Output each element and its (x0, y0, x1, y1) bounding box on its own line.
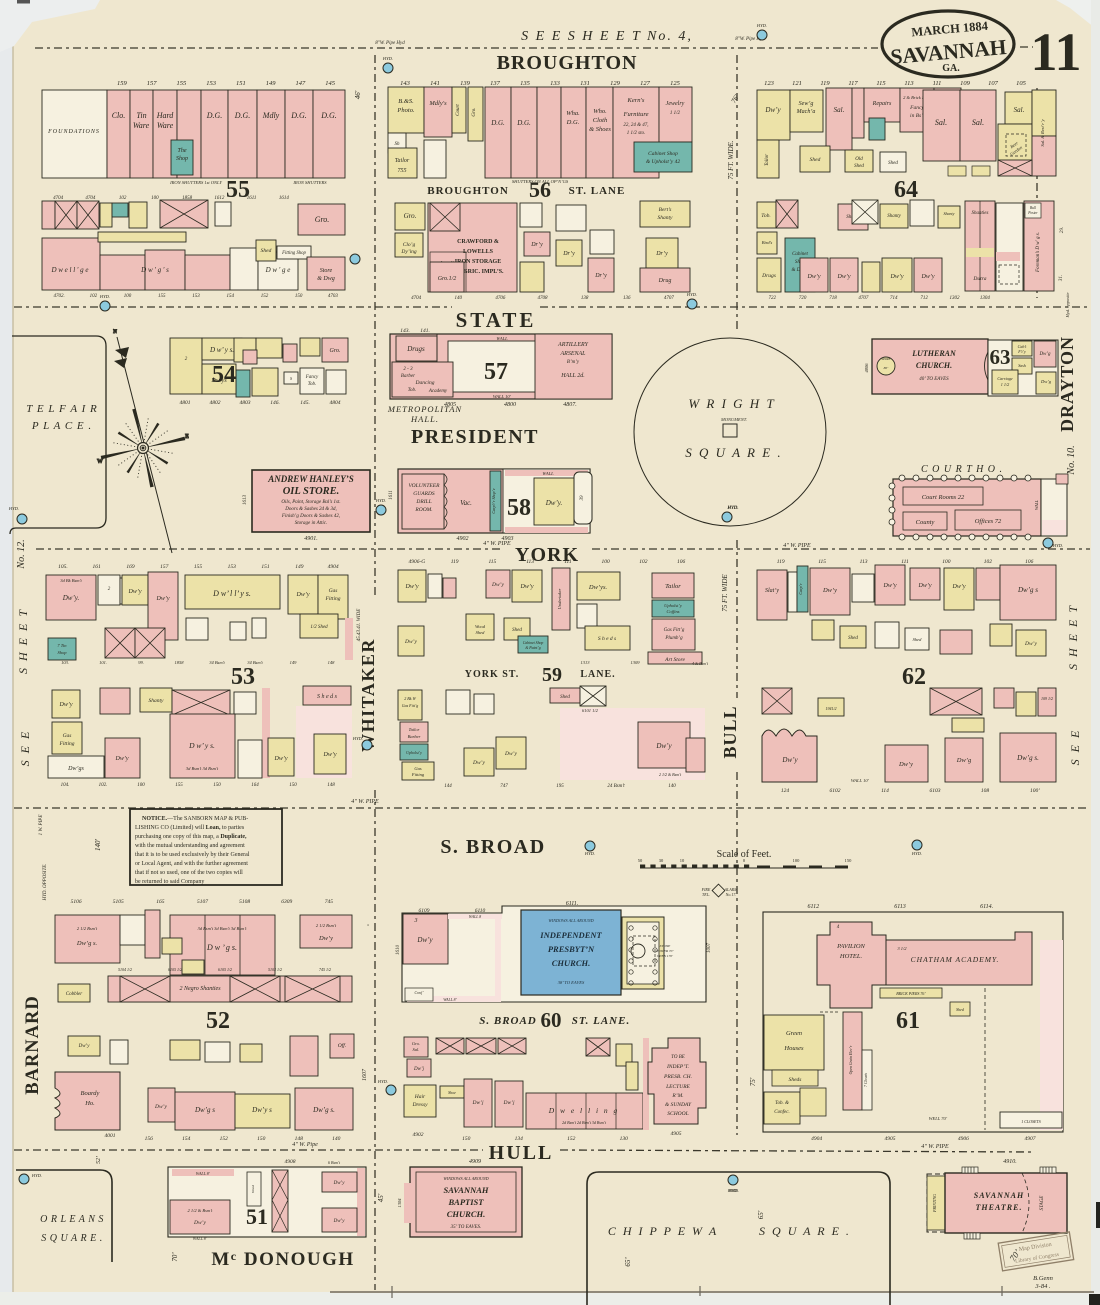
svg-text:WINDOWS ALL AROUND: WINDOWS ALL AROUND (548, 918, 593, 923)
svg-text:Dw’y: Dw’y (1024, 641, 1037, 647)
svg-text:6112: 6112 (808, 904, 820, 910)
svg-text:D w’ y s.: D w’ y s. (209, 346, 234, 354)
svg-text:119: 119 (777, 559, 785, 565)
svg-text:Wood: Wood (251, 1185, 255, 1193)
svg-text:745: 745 (325, 898, 334, 905)
svg-text:S h e d s: S h e d s (598, 636, 616, 642)
svg-text:117: 117 (848, 80, 858, 87)
svg-text:4908: 4908 (285, 1158, 296, 1165)
svg-text:IRON SHUTTERS 1st ONLY: IRON SHUTTERS 1st ONLY (169, 180, 222, 185)
svg-text:Hyd. opposite: Hyd. opposite (1065, 293, 1070, 319)
svg-text:6105 1/2: 6105 1/2 (218, 967, 232, 972)
svg-text:BROUGHTON: BROUGHTON (497, 52, 638, 74)
svg-text:Tailor: Tailor (665, 583, 681, 590)
svg-text:OPEN 170’: OPEN 170’ (657, 954, 674, 958)
svg-text:HYD.: HYD. (727, 1188, 738, 1193)
svg-text:35’ TO EAVES.: 35’ TO EAVES. (451, 1225, 482, 1230)
svg-text:Tob.: Tob. (761, 213, 770, 219)
svg-text:Upholst’y: Upholst’y (406, 750, 422, 755)
svg-text:W: W (97, 459, 103, 465)
svg-text:BARNARD: BARNARD (23, 995, 43, 1095)
svg-text:STAGE: STAGE (1040, 1196, 1045, 1211)
svg-text:6105 1/2: 6105 1/2 (168, 967, 182, 972)
svg-text:Sal.: Sal. (935, 118, 947, 127)
svg-text:164: 164 (251, 783, 259, 788)
svg-text:R’M.: R’M. (671, 1093, 683, 1099)
svg-text:Dw’y: Dw’y (193, 1220, 206, 1226)
svg-text:& Shoes: & Shoes (589, 126, 611, 133)
svg-text:102.: 102. (99, 783, 108, 788)
svg-text:1 CLOSETS: 1 CLOSETS (1021, 1119, 1040, 1124)
svg-text:WELL 70’: WELL 70’ (929, 1116, 948, 1121)
svg-text:Old: Old (855, 157, 863, 162)
svg-text:64: 64 (894, 177, 918, 203)
svg-text:4902: 4902 (413, 1131, 424, 1138)
svg-text:2 - 3: 2 - 3 (403, 367, 413, 372)
svg-text:ST. LANE: ST. LANE (569, 185, 626, 197)
svg-text:Ho.: Ho. (84, 1100, 95, 1107)
svg-text:STATE: STATE (456, 308, 537, 332)
svg-text:2 1/2 & Bsm’t: 2 1/2 & Bsm’t (659, 772, 682, 777)
svg-text:THEATRE.: THEATRE. (976, 1203, 1023, 1212)
svg-text:B.Genn: B.Genn (1033, 1275, 1053, 1282)
svg-text:161: 161 (93, 564, 102, 570)
svg-text:Shed: Shed (476, 630, 485, 635)
svg-text:45': 45' (377, 1193, 385, 1202)
svg-text:57: 57 (484, 359, 508, 385)
svg-text:105: 105 (1016, 80, 1027, 87)
svg-text:GA.: GA. (942, 63, 960, 74)
svg-text:SAVANNAH: SAVANNAH (974, 1191, 1024, 1200)
svg-text:1941/2: 1941/2 (825, 706, 836, 711)
svg-text:Gas: Gas (63, 733, 72, 739)
svg-text:119: 119 (820, 80, 830, 87)
svg-text:58: 58 (507, 495, 531, 521)
svg-text:4704: 4704 (53, 196, 64, 201)
svg-text:Dw’y: Dw’y (156, 596, 170, 602)
svg-text:109: 109 (960, 80, 971, 87)
svg-text:1610: 1610 (396, 945, 401, 956)
svg-text:51: 51 (246, 1204, 268, 1229)
svg-text:147: 147 (296, 80, 307, 87)
svg-text:56: 56 (529, 177, 551, 202)
svg-text:4001: 4001 (105, 1132, 116, 1139)
svg-text:153: 153 (192, 294, 200, 299)
svg-text:Court: Court (456, 104, 461, 116)
svg-text:52: 52 (206, 1008, 230, 1034)
svg-text:D w ' g e: D w ' g e (265, 266, 291, 274)
svg-text:Shop: Shop (58, 650, 68, 655)
svg-text:Fancy: Fancy (909, 105, 924, 111)
svg-text:121: 121 (792, 80, 802, 87)
svg-text:Mdly: Mdly (262, 111, 280, 120)
svg-text:722: 722 (768, 296, 776, 301)
svg-text:4807.: 4807. (563, 401, 577, 408)
svg-text:106: 106 (677, 559, 686, 565)
svg-text:7 Closets: 7 Closets (864, 1072, 868, 1087)
svg-text:Art Store: Art Store (664, 657, 685, 663)
svg-text:Confec.: Confec. (774, 1110, 789, 1115)
svg-text:Drugs: Drugs (406, 345, 425, 353)
svg-text:P L A C E .: P L A C E . (31, 420, 92, 432)
svg-text:D.G.: D.G. (490, 119, 505, 127)
svg-text:Conf’: Conf’ (415, 991, 425, 995)
svg-text:Dw’y: Dw’y (333, 1181, 346, 1186)
svg-text:S h e d s: S h e d s (317, 694, 338, 700)
svg-text:Drugs: Drugs (761, 273, 776, 279)
svg-text:Cabinet Shop: Cabinet Shop (523, 641, 544, 645)
svg-text:Dw’y: Dw’y (333, 1219, 346, 1224)
svg-text:Houses: Houses (783, 1045, 804, 1052)
svg-text:HYD.: HYD. (31, 1173, 42, 1178)
svg-text:4905: 4905 (885, 1135, 896, 1142)
svg-text:100: 100 (793, 858, 801, 863)
svg-text:Dw’y: Dw’y (323, 752, 337, 758)
svg-text:124: 124 (781, 787, 790, 794)
svg-text:Dw’y: Dw’y (655, 742, 672, 750)
svg-text:6101 1/2: 6101 1/2 (582, 708, 599, 713)
svg-text:Dw’y: Dw’y (274, 756, 288, 762)
svg-text:GUARDS: GUARDS (413, 491, 435, 497)
svg-text:119: 119 (451, 559, 459, 565)
svg-text:Off.: Off. (338, 1042, 347, 1049)
svg-text:C H I P P E W A: C H I P P E W A (608, 1224, 718, 1238)
svg-text:Dw’g s.: Dw’g s. (312, 1106, 335, 1114)
svg-text:129: 129 (610, 80, 621, 87)
svg-text:140: 140 (332, 1135, 341, 1142)
svg-text:ARSENAL: ARSENAL (560, 351, 587, 357)
svg-text:Barber: Barber (401, 374, 415, 379)
svg-text:Tob.: Tob. (308, 382, 317, 387)
svg-text:145: 145 (325, 80, 336, 87)
svg-text:54: 54 (212, 362, 236, 388)
svg-text:Clo’g: Clo’g (403, 242, 416, 248)
svg-text:149: 149 (266, 80, 277, 87)
svg-text:Sheds: Sheds (789, 1077, 802, 1083)
svg-text:150: 150 (213, 783, 221, 788)
svg-text:Wood: Wood (475, 624, 486, 629)
svg-text:Dw’y: Dw’y (318, 935, 333, 942)
svg-text:101.: 101. (99, 660, 107, 665)
svg-text:4910.: 4910. (1003, 1158, 1017, 1165)
svg-text:169: 169 (126, 564, 135, 570)
svg-text:Sew’g: Sew’g (799, 101, 814, 107)
svg-text:Jewelry: Jewelry (666, 101, 685, 107)
svg-text:Mach’a: Mach’a (796, 109, 816, 115)
svg-text:No.17.: No.17. (725, 892, 737, 897)
svg-text:Court Rooms 22: Court Rooms 22 (922, 494, 965, 501)
svg-text:Bird’s: Bird’s (762, 240, 773, 245)
svg-text:Gro.: Gro. (412, 1041, 420, 1046)
svg-text:4903: 4903 (502, 535, 514, 542)
svg-text:Hard: Hard (156, 111, 175, 120)
svg-text:3-84 .: 3-84 . (1034, 1283, 1051, 1290)
svg-text:D w ' g ' s: D w ' g ' s (140, 266, 169, 274)
svg-text:LOWELLS: LOWELLS (463, 249, 494, 255)
svg-text:102: 102 (119, 196, 127, 201)
svg-text:be returned to said Company: be returned to said Company (135, 879, 204, 885)
svg-text:Fancy: Fancy (305, 375, 319, 380)
svg-text:5106: 5106 (71, 899, 82, 905)
svg-text:Doors & Sashes 2d & 3d,: Doors & Sashes 2d & 3d, (284, 507, 336, 512)
svg-text:150: 150 (295, 294, 303, 299)
svg-text:4805: 4805 (444, 401, 456, 408)
svg-text:S: S (290, 376, 292, 381)
svg-text:D w e l l ' g e: D w e l l ' g e (50, 266, 88, 274)
svg-text:4" W. PIPE: 4" W. PIPE (921, 1143, 949, 1150)
svg-text:B’m’y: B’m’y (567, 360, 580, 365)
svg-text:Tailor: Tailor (395, 158, 410, 164)
svg-text:4904: 4904 (811, 1135, 822, 1142)
svg-text:31.: 31. (1059, 275, 1064, 281)
svg-text:4906-G: 4906-G (408, 558, 425, 565)
svg-text:LISHING CO (Limited) will Loa: LISHING CO (Limited) will Loan, to parti… (135, 824, 245, 831)
svg-text:WALL 8’: WALL 8’ (443, 998, 457, 1002)
svg-text:Dw’y: Dw’y (472, 760, 485, 766)
svg-text:Dw’g: Dw’g (1040, 379, 1052, 384)
svg-text:HYD.: HYD. (727, 505, 738, 510)
svg-text:Dw’y: Dw’y (837, 274, 851, 280)
svg-text:HULL: HULL (489, 1142, 554, 1164)
svg-text:Shanty: Shanty (944, 211, 955, 216)
svg-text:4" W. Pipe: 4" W. Pipe (292, 1141, 318, 1148)
svg-text:SCHOOL: SCHOOL (667, 1111, 688, 1117)
svg-text:ANDREW HANLEY’S: ANDREW HANLEY’S (267, 474, 354, 484)
svg-text:4800: 4800 (504, 401, 516, 408)
svg-text:1/2 Shed: 1/2 Shed (310, 625, 328, 630)
svg-text:100’: 100’ (1030, 788, 1040, 794)
svg-text:3: 3 (414, 918, 418, 924)
svg-text:C O U R T H O .: C O U R T H O . (921, 464, 1003, 475)
svg-text:1858: 1858 (175, 660, 185, 665)
svg-text:1313: 1313 (581, 660, 591, 665)
svg-text:105.: 105. (58, 564, 68, 570)
svg-text:VOLUNTEER: VOLUNTEER (408, 483, 440, 489)
svg-text:113: 113 (904, 80, 914, 87)
svg-text:HYD.: HYD. (584, 851, 595, 856)
svg-text:B.&S.: B.&S. (398, 98, 414, 105)
svg-text:D.G.: D.G. (320, 111, 337, 120)
svg-text:720: 720 (799, 296, 807, 301)
svg-text:113: 113 (526, 559, 534, 565)
svg-text:Shanty: Shanty (149, 698, 165, 704)
svg-text:S. BROAD: S. BROAD (440, 836, 545, 858)
svg-text:75 FT. WIDE: 75 FT. WIDE (721, 574, 729, 612)
svg-text:145.: 145. (300, 399, 310, 406)
svg-text:10: 10 (680, 858, 685, 863)
svg-text:& Dwg: & Dwg (317, 276, 335, 282)
svg-text:LANE.: LANE. (580, 669, 615, 680)
svg-text:149: 149 (295, 563, 304, 570)
svg-text:Dancing: Dancing (415, 380, 435, 386)
svg-text:Green: Green (786, 1030, 802, 1037)
svg-text:4704: 4704 (85, 196, 96, 201)
svg-text:Offices 72: Offices 72 (975, 518, 1002, 525)
svg-text:4801: 4801 (180, 399, 191, 406)
svg-text:3d Bsm’t 3d Bsm’t: 3d Bsm’t 3d Bsm’t (186, 766, 219, 771)
svg-text:HYD. OPPOSITE.: HYD. OPPOSITE. (43, 863, 48, 901)
svg-text:108: 108 (981, 788, 990, 794)
svg-text:1613: 1613 (243, 495, 248, 506)
svg-text:DRAYTON: DRAYTON (1057, 336, 1077, 432)
svg-text:Dw’y: Dw’y (764, 106, 781, 114)
svg-text:137: 137 (490, 80, 501, 87)
svg-text:HYD.: HYD. (911, 851, 922, 856)
svg-text:5107: 5107 (197, 899, 208, 905)
svg-text:6 Bsm’t: 6 Bsm’t (328, 1160, 341, 1165)
svg-text:S E E S H E E T No. 4,: S E E S H E E T No. 4, (521, 29, 693, 44)
svg-text:PRESB. CH.: PRESB. CH. (663, 1074, 692, 1080)
svg-text:150: 150 (289, 783, 297, 788)
svg-text:T E L F A I R: T E L F A I R (26, 403, 97, 415)
svg-text:D w’ y s.: D w’ y s. (188, 741, 215, 750)
svg-text:that it is to be used exclusiv: that it is to be used exclusively by the… (135, 852, 250, 858)
svg-text:Oils, Paint, Storage Bal’s 1st: Oils, Paint, Storage Bal’s 1st. (281, 500, 340, 505)
svg-text:WALL 8’: WALL 8’ (193, 1236, 208, 1241)
svg-text:159: 159 (117, 80, 128, 87)
svg-text:that if not so used, one of th: that if not so used, one of the two copi… (135, 869, 243, 876)
svg-text:IRON SHUTTERS: IRON SHUTTERS (292, 180, 327, 185)
svg-text:TOWER 70’: TOWER 70’ (656, 949, 674, 953)
svg-text:156: 156 (145, 1136, 154, 1142)
svg-text:131: 131 (580, 80, 590, 87)
svg-text:Shed: Shed (956, 1007, 965, 1012)
svg-text:Sash: Sash (1018, 363, 1026, 368)
svg-text:Sal.: Sal. (972, 118, 984, 127)
svg-text:141: 141 (430, 80, 440, 87)
svg-text:CHURCH.: CHURCH. (447, 1209, 486, 1219)
svg-text:138: 138 (581, 296, 589, 301)
svg-text:3 1/2: 3 1/2 (897, 946, 907, 951)
svg-text:E: E (185, 434, 189, 440)
svg-text:OIL STORE.: OIL STORE. (283, 486, 340, 497)
svg-text:148: 148 (328, 660, 336, 665)
svg-text:140: 140 (668, 784, 676, 789)
svg-text:Ware: Ware (157, 121, 174, 130)
svg-text:107: 107 (988, 80, 999, 87)
svg-text:Slat’y: Slat’y (765, 588, 779, 594)
svg-text:Sal.: Sal. (1014, 106, 1025, 114)
svg-text:106: 106 (1025, 559, 1034, 565)
svg-text:45.43.41. WIDE: 45.43.41. WIDE (357, 609, 362, 642)
svg-text:5105: 5105 (113, 899, 124, 905)
svg-text:141.: 141. (420, 327, 430, 334)
svg-text:6309: 6309 (281, 899, 292, 905)
svg-text:Who.: Who. (593, 108, 607, 115)
svg-text:5104 1/2: 5104 1/2 (118, 967, 132, 972)
svg-text:Dw’j: Dw’j (413, 1067, 425, 1072)
svg-text:Dw’g: Dw’g (1038, 352, 1051, 357)
svg-text:Carriage: Carriage (997, 376, 1012, 381)
svg-text:Carp’r: Carp’r (798, 583, 803, 595)
svg-text:Hair: Hair (414, 1094, 426, 1100)
svg-text:S E E: S E E (18, 730, 32, 767)
svg-text:Dw’y: Dw’y (898, 761, 913, 768)
svg-text:WALL 10’: WALL 10’ (851, 778, 870, 783)
svg-text:Gro.: Gro. (315, 215, 330, 224)
svg-text:Dw’j: Dw’j (503, 1100, 515, 1106)
svg-text:SPIRE: SPIRE (881, 357, 891, 361)
svg-text:4706: 4706 (495, 296, 506, 301)
svg-text:7 Tin: 7 Tin (57, 643, 67, 648)
svg-text:HYD.: HYD. (8, 506, 19, 511)
svg-text:W R I G H T: W R I G H T (688, 396, 775, 411)
svg-text:1 W. PIPE: 1 W. PIPE (39, 815, 44, 836)
svg-text:75': 75' (749, 1077, 757, 1086)
svg-text:Dw’y.: Dw’y. (545, 499, 563, 507)
svg-text:Academy: Academy (428, 389, 448, 394)
svg-text:2 1/2 & Bsm’t: 2 1/2 & Bsm’t (188, 1208, 214, 1213)
svg-text:153: 153 (206, 80, 217, 87)
svg-text:115: 115 (818, 559, 826, 565)
svg-text:1611: 1611 (247, 196, 257, 201)
svg-text:Dw’y: Dw’y (491, 582, 504, 588)
svg-text:TEL.: TEL. (702, 892, 710, 897)
svg-text:745 1/2: 745 1/2 (319, 967, 331, 972)
svg-text:Dw’ys.: Dw’ys. (588, 584, 608, 591)
svg-text:Dr’y: Dr’y (530, 242, 543, 248)
svg-text:DRILL: DRILL (415, 499, 431, 505)
svg-text:109 1/2: 109 1/2 (1041, 696, 1053, 701)
svg-text:4704: 4704 (411, 296, 422, 301)
svg-text:Dw’gs: Dw’gs (67, 766, 84, 772)
svg-text:52’: 52’ (96, 1156, 102, 1164)
svg-text:County: County (916, 519, 935, 526)
svg-text:5108: 5108 (239, 899, 250, 905)
svg-text:100: 100 (137, 783, 145, 788)
svg-text:22, 24 & 47,: 22, 24 & 47, (623, 123, 648, 128)
svg-text:148: 148 (295, 1135, 304, 1142)
svg-text:61: 61 (896, 1008, 920, 1034)
svg-text:HYD.: HYD. (377, 1079, 388, 1084)
svg-text:S E E: S E E (1068, 729, 1082, 766)
svg-text:Dw’y: Dw’y (128, 589, 142, 595)
svg-text:63: 63 (990, 345, 1011, 369)
svg-text:Dw’y: Dw’y (807, 274, 821, 280)
svg-text:Dw’j: Dw’j (472, 1100, 484, 1106)
svg-text:Dw’y: Dw’y (405, 584, 419, 590)
svg-text:100: 100 (124, 294, 132, 299)
svg-text:62: 62 (902, 664, 926, 690)
svg-text:D.G.: D.G. (206, 111, 223, 120)
svg-text:29.: 29. (1060, 227, 1065, 233)
svg-text:Shanty: Shanty (658, 215, 674, 221)
svg-text:155: 155 (158, 294, 166, 299)
svg-text:Gas Fitt’g: Gas Fitt’g (664, 628, 685, 633)
svg-text:34 Bsm’t: 34 Bsm’t (209, 660, 225, 665)
svg-text:Dy’ing: Dy’ing (400, 249, 417, 255)
svg-text:WALL: WALL (496, 336, 508, 341)
svg-text:Gro.: Gro. (472, 107, 477, 116)
svg-text:Foreman’s D w’ g s.: Foreman’s D w’ g s. (1036, 232, 1041, 273)
svg-text:ROOM.: ROOM. (414, 507, 432, 513)
svg-text:Shoe: Shoe (448, 1090, 456, 1095)
svg-text:ST. LANE.: ST. LANE. (572, 1015, 630, 1027)
svg-text:4802: 4802 (210, 399, 221, 406)
svg-text:50: 50 (638, 858, 643, 863)
svg-text:4906: 4906 (958, 1135, 969, 1142)
svg-text:4806: 4806 (864, 363, 869, 373)
svg-text:Tailor: Tailor (409, 727, 420, 732)
svg-text:Drug: Drug (658, 278, 672, 284)
svg-text:D.G.: D.G. (516, 119, 531, 127)
svg-text:WINDOWS ALL AROUND: WINDOWS ALL AROUND (443, 1176, 488, 1181)
svg-text:Dw’y: Dw’y (504, 751, 517, 757)
svg-text:75 FT. WIDE.: 75 FT. WIDE. (727, 140, 735, 179)
svg-text:MONUMENT.: MONUMENT. (720, 417, 747, 422)
svg-text:WALL: WALL (1034, 499, 1039, 510)
svg-text:151: 151 (236, 80, 246, 87)
